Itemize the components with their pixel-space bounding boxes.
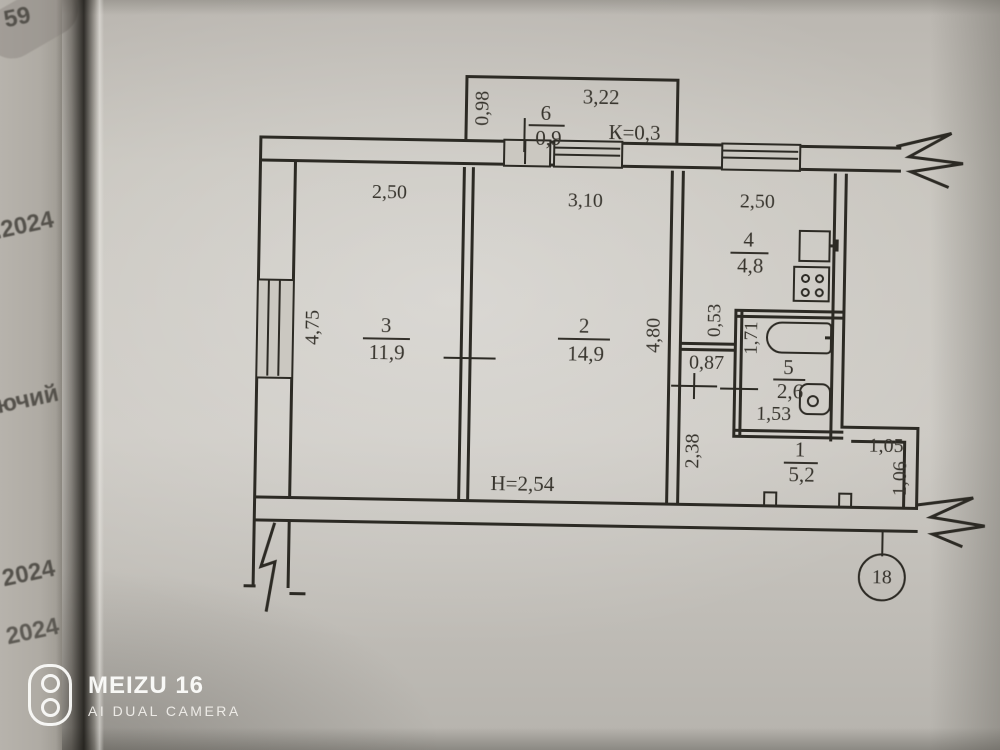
watermark-subtitle: AI DUAL CAMERA [88, 703, 241, 719]
room-5-area: 2,6 [777, 379, 804, 404]
wall-break-symbols [243, 63, 968, 650]
dim-bath-width: 1,53 [756, 403, 791, 427]
dual-camera-icon [28, 664, 72, 726]
dim-kitchen-recess: 0,53 [704, 304, 727, 338]
dim-top-middle: 3,10 [568, 189, 603, 213]
dim-entry-depth: 1,06 [889, 461, 913, 496]
dim-balcony-width: 3,22 [583, 85, 620, 111]
floor-plan: 0,98 3,22 6 0,9 К=0,3 2,50 3,10 2,50 4,7… [243, 63, 968, 650]
room-4-area: 4,8 [737, 253, 764, 278]
photo-background: 59 .2024 ючий 2024 2024 [0, 0, 1000, 750]
fragment-text: 59 [1, 2, 33, 34]
room-4-number: 4 [743, 227, 754, 252]
underlying-page-edge: 59 .2024 ючий 2024 2024 [0, 0, 62, 750]
page-fragment: 59 [1, 2, 33, 35]
dim-bath-depth: 1,71 [741, 321, 764, 355]
balcony-coefficient: К=0,3 [608, 120, 661, 146]
camera-watermark: MEIZU 16 AI DUAL CAMERA [28, 664, 241, 726]
balcony-area: 0,9 [535, 126, 562, 151]
page-fragment: 2024 [0, 555, 58, 593]
wall-break-arrow [896, 133, 964, 188]
dim-top-left: 2,50 [372, 181, 407, 205]
dim-entry-width: 1,05 [868, 435, 903, 459]
room-3-area: 11,9 [368, 340, 404, 366]
balcony-number: 6 [540, 101, 551, 126]
watermark-text: MEIZU 16 AI DUAL CAMERA [88, 672, 241, 719]
room-3-number: 3 [381, 313, 392, 338]
apartment-number: 18 [872, 566, 892, 589]
dim-corridor: 0,87 [689, 351, 724, 375]
page-fragment: ючий [0, 380, 61, 420]
room-1-number: 1 [795, 437, 806, 462]
dim-top-right: 2,50 [740, 190, 775, 214]
wall-break-arrow [916, 497, 985, 547]
page-fragment: 2024 [4, 613, 62, 651]
dim-hall-depth: 2,38 [681, 433, 705, 468]
room-5-number: 5 [783, 355, 794, 380]
camera-lens-dot [41, 674, 60, 693]
page-fragment: .2024 [0, 206, 56, 246]
watermark-brand: MEIZU 16 [88, 672, 241, 700]
room-2-number: 2 [579, 314, 590, 339]
ceiling-height-label: Н=2,54 [490, 471, 554, 497]
camera-lens-dot [41, 698, 60, 717]
room-2-area: 14,9 [567, 341, 604, 367]
wall-break-bolt [260, 523, 276, 612]
dim-balcony-depth: 0,98 [471, 91, 495, 126]
dim-middle: 4,80 [642, 318, 666, 353]
room-1-area: 5,2 [788, 462, 815, 487]
dim-left-side: 4,75 [301, 310, 325, 345]
page-gap-shadow [56, 0, 104, 750]
